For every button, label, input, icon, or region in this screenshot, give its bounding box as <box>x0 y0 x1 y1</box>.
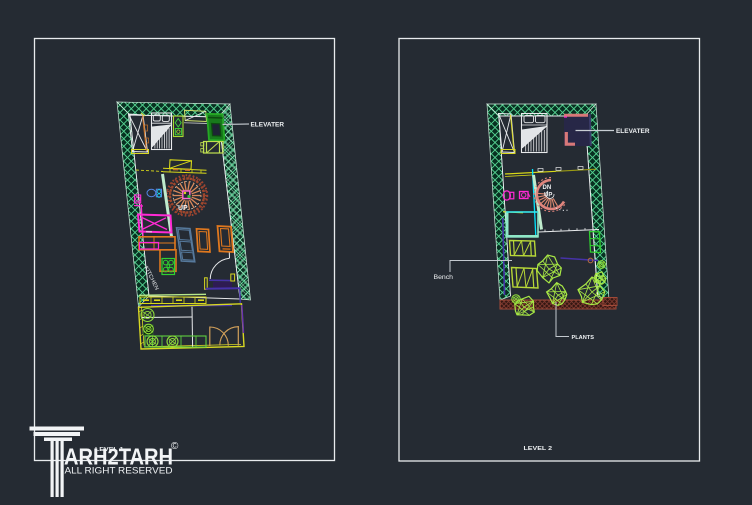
svg-text:UP: UP <box>178 205 188 212</box>
svg-text:LEVEL 2: LEVEL 2 <box>524 446 553 452</box>
svg-text:ELEVATER: ELEVATER <box>616 128 650 135</box>
svg-text:ALL RIGHT RESERVED: ALL RIGHT RESERVED <box>65 465 173 476</box>
svg-text:ELEVATER: ELEVATER <box>251 122 285 129</box>
svg-text:PLANTS: PLANTS <box>572 335 595 341</box>
svg-text:DN: DN <box>543 185 552 191</box>
svg-text:©: © <box>171 441 179 452</box>
svg-text:Bench: Bench <box>434 274 454 281</box>
svg-text:UP: UP <box>544 193 552 199</box>
